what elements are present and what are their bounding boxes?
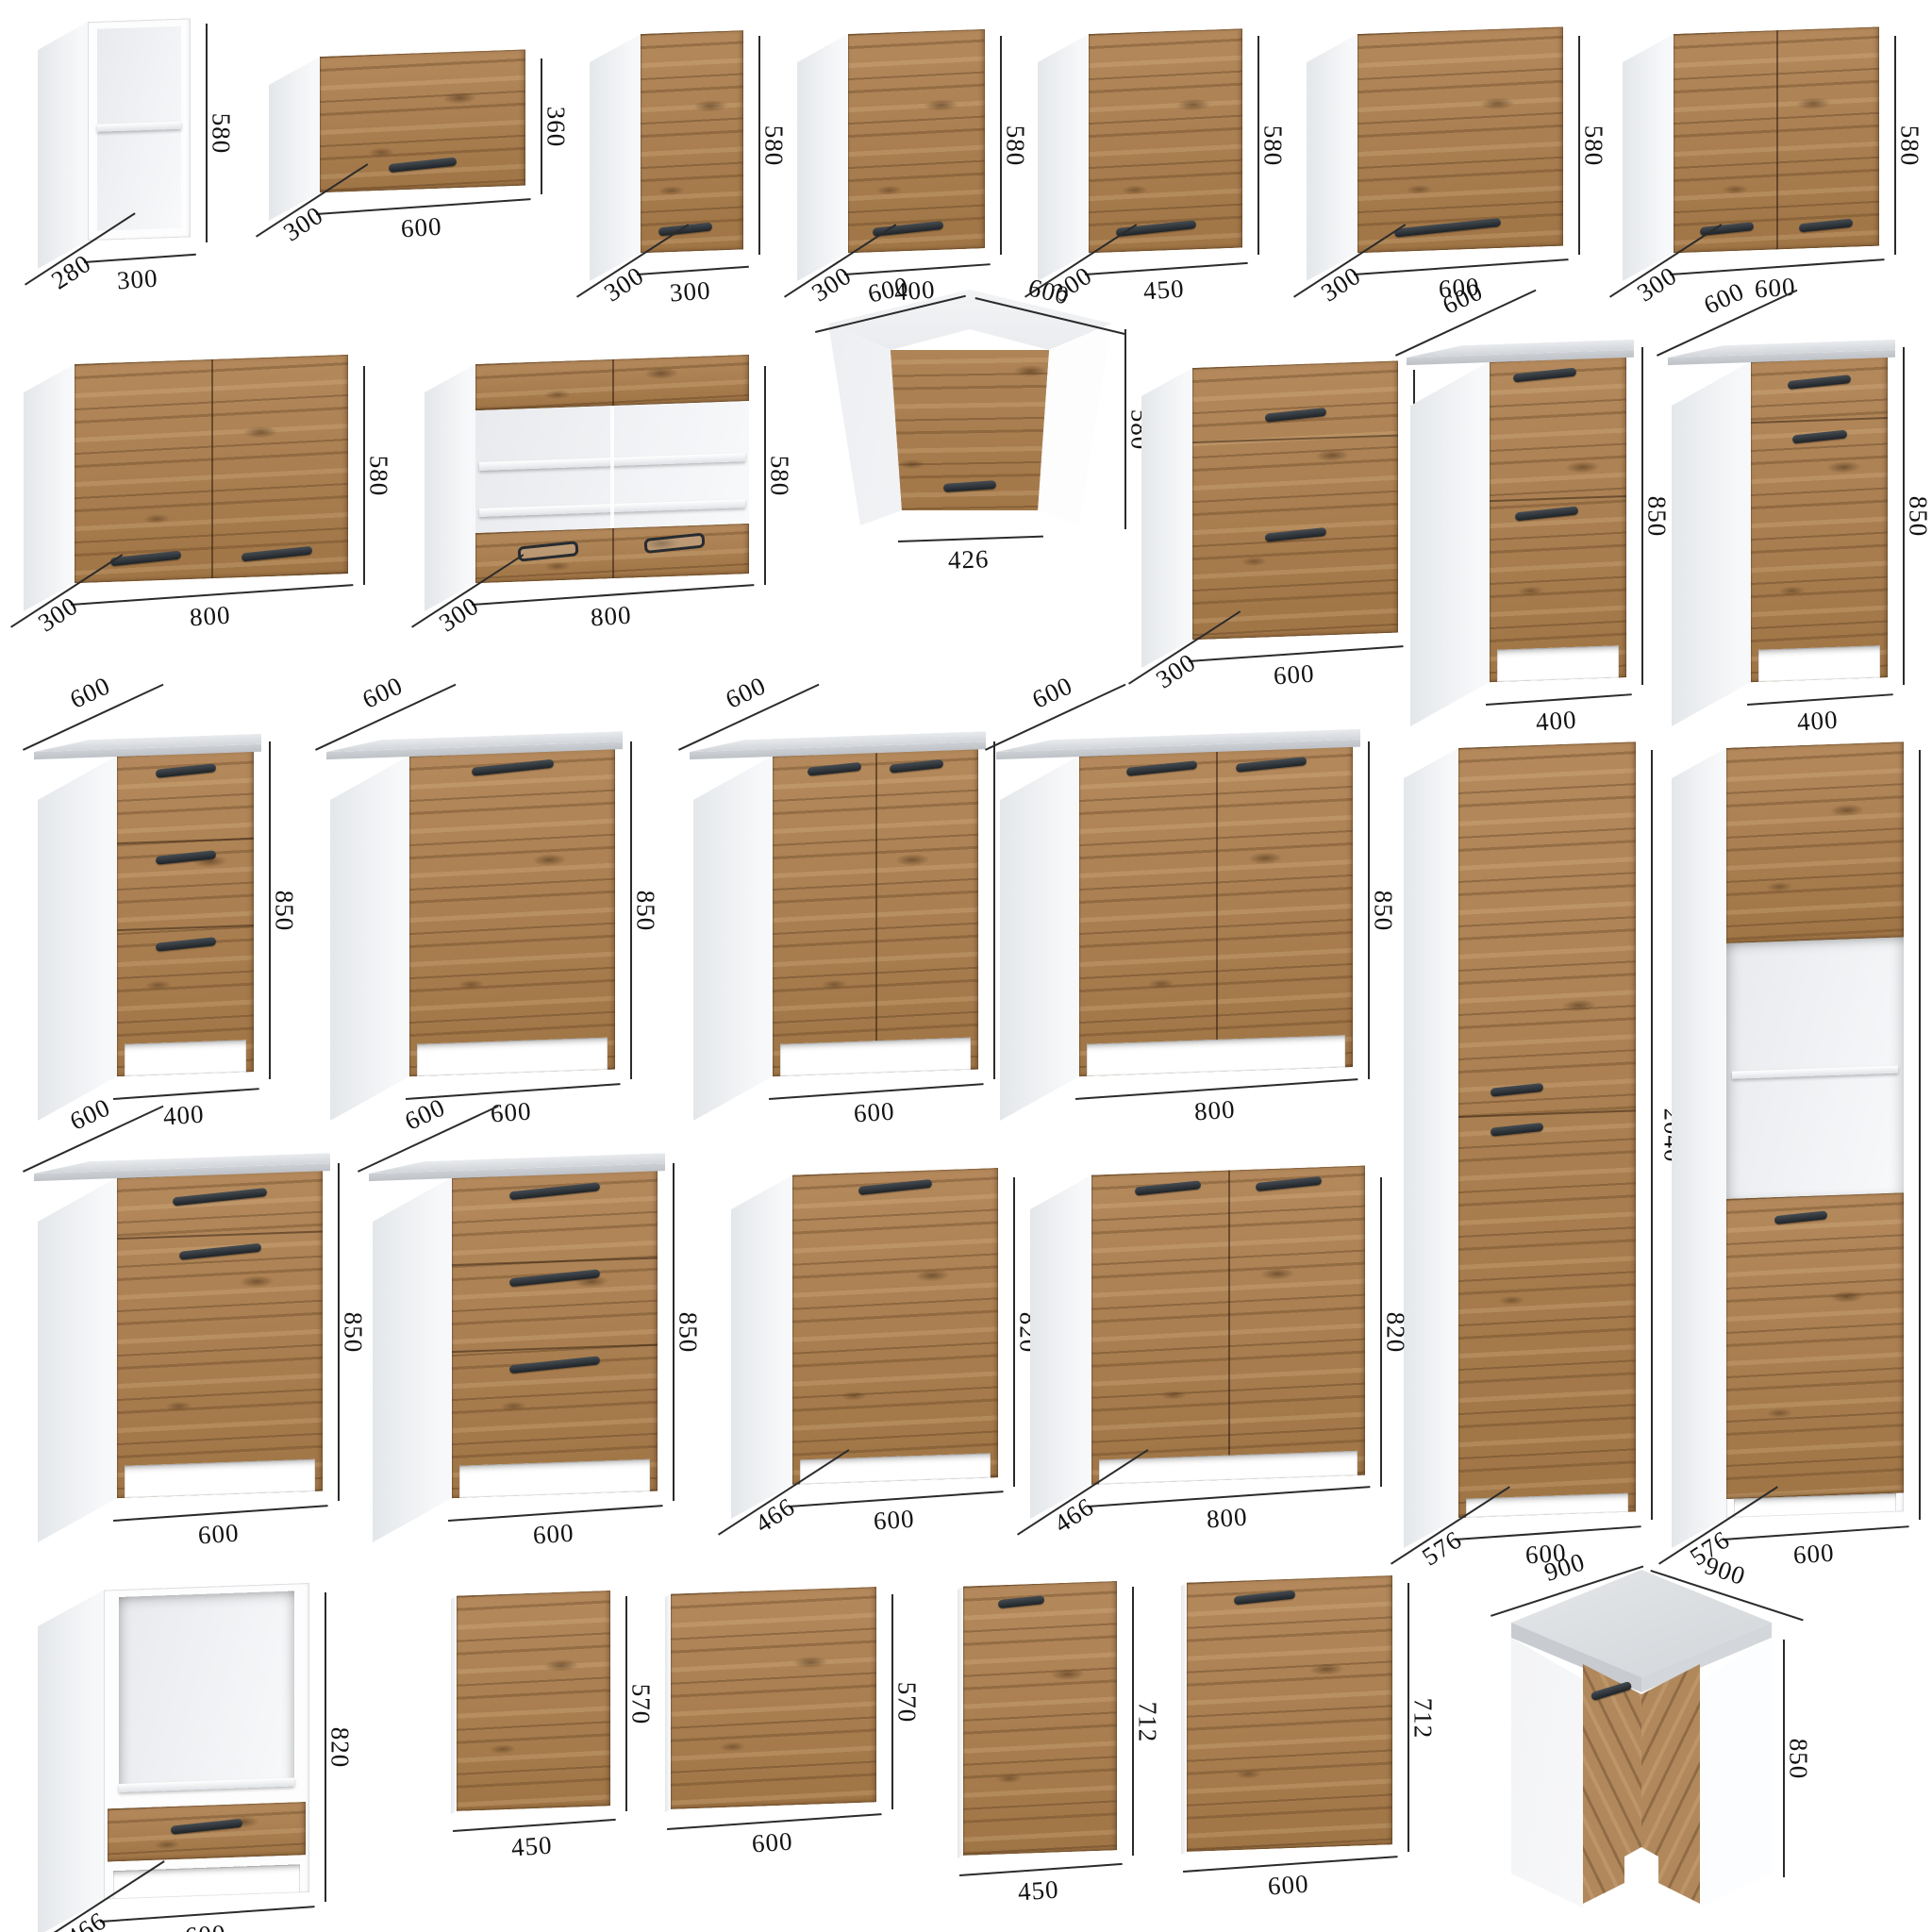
cabinet-body (693, 748, 990, 1126)
door-handle (1394, 218, 1501, 238)
front-face (88, 18, 191, 241)
cabinet-base-600-3drawer: 850600600 (373, 1163, 725, 1620)
height-dim-label: 570 (625, 1684, 655, 1725)
width-dim-label: 800 (590, 601, 633, 633)
side-panel (38, 756, 117, 1121)
height-dim-label: 570 (891, 1682, 921, 1724)
front-face (671, 1587, 876, 1809)
height-dim-label: 580 (1000, 125, 1029, 167)
cabinet-base-400-2door: 850400600 (1410, 347, 1694, 804)
width-dim-label: 450 (510, 1831, 554, 1863)
door-handle (472, 759, 554, 776)
glass-bottom-band (475, 524, 749, 583)
oven-niche (119, 1591, 294, 1790)
width-dim-label: 600 (184, 1920, 227, 1932)
height-dim-label: 580 (1894, 125, 1924, 167)
plinth (113, 1864, 300, 1899)
door-handle (1135, 1180, 1201, 1195)
drawer-seam (1458, 1109, 1636, 1118)
cabinet-body (665, 1587, 888, 1818)
height-dim-label: 850 (1641, 496, 1671, 538)
height-dim-line (1919, 750, 1921, 1520)
height-dim-label: 850 (673, 1312, 702, 1354)
cabinet-corner-base-900: 900900850 (1472, 1566, 1877, 1932)
cabinet-tall-600-pantry: 2040600576 (1404, 750, 1704, 1642)
front-face (117, 751, 254, 1076)
drawer-seam (1751, 417, 1888, 424)
width-dim-label: 600 (1267, 1870, 1310, 1902)
side-panel (38, 22, 88, 269)
cabinet-body (590, 30, 755, 287)
height-dim-label: 2040 (1926, 1108, 1932, 1163)
oven-niche (1726, 937, 1904, 1199)
drawer-seam (117, 924, 254, 931)
door-seam (1776, 30, 1778, 249)
side-panel (269, 57, 320, 221)
cabinet-wall-600: 580600300 (1307, 36, 1631, 375)
front-face (452, 1170, 658, 1498)
cabinet-base-800-2door: 850800600 (1000, 741, 1421, 1198)
drawer-seam (117, 1230, 323, 1240)
plinth (1758, 645, 1880, 682)
side-panel (693, 756, 773, 1121)
oven-bottom-door (1726, 1192, 1904, 1499)
side-panel (38, 1177, 117, 1542)
width-dim-label: 800 (1193, 1095, 1237, 1127)
drawer-seam (452, 1343, 658, 1353)
plinth (125, 1040, 246, 1076)
door-handle (110, 551, 181, 567)
cabinet-wall-600-2door: 580600300 (1623, 36, 1932, 375)
door-seam (1216, 751, 1218, 1040)
cabinet-wall-corner: 600600426580 (819, 288, 1177, 599)
cabinet-front-600x712: 712600 (1181, 1583, 1460, 1932)
door-handle (1799, 219, 1853, 233)
door-handle (389, 158, 457, 173)
corner-body (819, 288, 1130, 571)
height-dim-label: 850 (1783, 1739, 1812, 1780)
cabinet-body (451, 1591, 622, 1820)
side-panel (373, 1177, 452, 1542)
side-panel (1623, 34, 1674, 281)
door-handle (1788, 375, 1851, 390)
door-handle (156, 763, 216, 778)
drawer-seam (117, 838, 254, 844)
door-handle (808, 762, 861, 776)
side-panel (731, 1175, 792, 1519)
front-face (104, 1583, 309, 1900)
door-handle (873, 221, 943, 237)
plinth (780, 1038, 971, 1076)
side-panel (1672, 361, 1751, 726)
door-handle (1774, 1210, 1827, 1224)
cabinet-base-600-door: 850600600 (330, 741, 683, 1198)
door-handle (1792, 430, 1847, 444)
door-handle (1265, 408, 1326, 423)
cabinet-size-catalog: 5803002803606003005803003005804003005804… (0, 0, 1932, 1932)
front-face (1089, 28, 1242, 253)
width-dim-label: 600 (1273, 659, 1316, 691)
width-dim-label: 400 (162, 1100, 206, 1132)
cabinet-body (731, 1168, 1009, 1524)
front-face (475, 355, 749, 583)
height-dim-label: 580 (1578, 125, 1607, 167)
cabinet-front-450x570: 570450 (451, 1596, 678, 1908)
front-face (792, 1168, 998, 1485)
door-handle (173, 1188, 267, 1206)
door-seam (612, 359, 614, 406)
cabinet-body (1672, 741, 1915, 1554)
front-face (848, 29, 985, 253)
door-handle (509, 1182, 600, 1200)
height-dim-label: 580 (1257, 125, 1287, 167)
cabinet-oven-housing-600: 820600466 (38, 1592, 377, 1932)
height-dim-label: 850 (1368, 891, 1397, 932)
drawer-seam (452, 1257, 658, 1266)
front-face (1458, 741, 1636, 1518)
front-face (409, 748, 615, 1076)
door-handle (156, 850, 216, 865)
height-dim-label: 580 (764, 456, 793, 497)
door-handle (1236, 757, 1307, 773)
door-width-dim-label: 426 (947, 544, 990, 575)
height-dim-label: 360 (541, 107, 570, 148)
width-dim-label: 600 (853, 1097, 896, 1129)
width-dim-label: 450 (1017, 1875, 1060, 1907)
cabinet-body (1030, 1165, 1376, 1524)
plinth (800, 1453, 991, 1484)
width-dim-line (453, 1819, 616, 1832)
height-dim-label: 712 (1132, 1702, 1161, 1743)
plinth (1466, 1493, 1628, 1518)
side-panel (1000, 756, 1079, 1121)
width-dim-label: 300 (669, 276, 712, 308)
cabinet-body (38, 18, 202, 275)
door-handle (509, 1356, 600, 1374)
front-face (1192, 361, 1398, 641)
height-dim-label: 580 (363, 456, 392, 497)
cabinet-wall-800-2door: 580800300 (24, 366, 416, 706)
cabinet-body (1623, 26, 1890, 287)
front-face (1187, 1575, 1392, 1852)
height-dim-label: 820 (325, 1727, 354, 1769)
width-dim-label: 400 (1796, 706, 1840, 738)
width-dim-label: 300 (116, 264, 159, 296)
height-dim-label: 712 (1407, 1698, 1437, 1740)
drawer-seam (1490, 495, 1626, 502)
glass-panel (475, 401, 749, 533)
cabinet-body (1141, 360, 1409, 674)
front-face (963, 1581, 1117, 1856)
width-dim-label: 800 (1206, 1503, 1249, 1535)
door-seam (612, 528, 614, 578)
door-handle (518, 541, 579, 562)
cabinet-body (38, 1170, 334, 1548)
width-dim-line (959, 1863, 1123, 1876)
cabinet-base-800-2door-low: 820800466 (1030, 1177, 1433, 1613)
cabinet-tall-600-oven: 2040600576 (1672, 750, 1932, 1642)
door-handle (1265, 527, 1326, 542)
cabinet-body (958, 1581, 1128, 1864)
width-dim-label: 600 (197, 1519, 241, 1551)
niche-shelf (1732, 1066, 1898, 1079)
width-dim-label: 600 (751, 1827, 794, 1859)
width-dim-label: 600 (873, 1505, 916, 1537)
front-face (641, 30, 743, 253)
cabinet-wall-flap-600: 360600300 (269, 58, 593, 315)
drawer-handle (171, 1819, 242, 1835)
cabinet-front-450x712: 712450 (958, 1587, 1185, 1932)
cabinet-body (425, 355, 760, 617)
cabinet-body (1000, 746, 1364, 1126)
front-face (1726, 741, 1904, 1518)
cabinet-body (1307, 26, 1574, 287)
height-dim-label: 850 (630, 891, 659, 932)
cabinet-body (330, 748, 626, 1126)
side-panel (38, 1591, 104, 1932)
oven-drawer (108, 1802, 306, 1861)
cabinet-body (797, 29, 996, 287)
door-seam (211, 359, 213, 578)
height-dim-line (1651, 750, 1653, 1520)
door-seam (875, 752, 877, 1041)
side-panel (590, 34, 641, 281)
front-face (1079, 746, 1353, 1076)
front-face (773, 748, 978, 1076)
front-face (1674, 27, 1879, 254)
height-dim-label: 850 (1903, 496, 1932, 538)
door-handle (1491, 1123, 1543, 1137)
plinth (1497, 645, 1619, 682)
door-handle (241, 546, 312, 562)
front-face (1091, 1166, 1365, 1485)
height-dim-label: 820 (1380, 1312, 1409, 1354)
width-dim-label: 600 (490, 1097, 533, 1129)
plinth (417, 1038, 608, 1076)
front-face (75, 355, 348, 583)
side-panel (1307, 34, 1357, 281)
width-dim-label: 800 (189, 601, 232, 633)
side-panel (425, 364, 475, 611)
side-panel (330, 756, 409, 1121)
glass-mullion (610, 406, 614, 528)
door-handle (890, 759, 943, 774)
cabinet-body (1181, 1575, 1404, 1860)
front-face (117, 1170, 323, 1498)
drawer-seam (1192, 435, 1398, 444)
door-handle (1491, 1083, 1543, 1097)
cabinet-body (1038, 28, 1254, 287)
side-panel (1672, 748, 1726, 1548)
cabinet-body (373, 1170, 669, 1548)
cabinet-body (1410, 357, 1638, 732)
cabinet-open-shelf-unit: 580300280 (38, 24, 258, 363)
door-handle (998, 1595, 1045, 1608)
width-dim-label: 600 (532, 1519, 575, 1551)
oven-top-door (1726, 741, 1904, 943)
door-handle (644, 532, 706, 554)
cabinet-base-600-door-low: 820600466 (731, 1177, 1066, 1613)
door-handle (1234, 1591, 1295, 1606)
height-dim-label: 850 (338, 1312, 367, 1354)
front-face (1490, 357, 1626, 682)
height-dim-label: 580 (758, 125, 788, 167)
side-panel (1410, 361, 1490, 726)
width-dim-label: 600 (400, 212, 443, 244)
cabinet-wall-800-glass: 580800300 (425, 366, 817, 706)
height-dim-label: 850 (269, 891, 298, 932)
side-panel (1038, 34, 1089, 281)
cabinet-body (1672, 357, 1899, 732)
cabinet-wall-300: 580300300 (590, 36, 811, 375)
door-handle (509, 1269, 600, 1287)
door-handle (1515, 506, 1578, 521)
cabinet-base-600-2door: 850600600 (693, 741, 1046, 1198)
cabinet-body (38, 1583, 321, 1932)
plinth (1087, 1035, 1345, 1076)
height-dim-label: 580 (206, 113, 235, 155)
door-handle (1513, 368, 1576, 383)
width-dim-label: 400 (1535, 706, 1578, 738)
door-seam (1228, 1171, 1230, 1456)
plinth (125, 1459, 315, 1498)
cabinet-body (1404, 741, 1647, 1554)
front-face (1751, 357, 1888, 682)
cabinet-body (24, 355, 359, 617)
side-panel (797, 34, 848, 281)
door-handle (1256, 1176, 1322, 1191)
cabinet-front-600x570: 570600 (665, 1594, 944, 1907)
front-face (1357, 27, 1563, 254)
side-panel (1141, 368, 1192, 668)
plinth (459, 1459, 650, 1498)
side-panel (24, 364, 75, 611)
front-face (457, 1591, 610, 1811)
front-face (320, 50, 525, 193)
side-panel (1030, 1175, 1091, 1519)
door-handle (858, 1179, 932, 1195)
door-handle (156, 937, 216, 952)
cabinet-base-400-drawer-door: 850400600 (1672, 347, 1932, 804)
door-handle (1126, 760, 1197, 776)
cabinet-body (38, 751, 265, 1126)
door-handle (179, 1243, 261, 1260)
cabinet-base-600-drawer-door: 850600600 (38, 1163, 391, 1620)
